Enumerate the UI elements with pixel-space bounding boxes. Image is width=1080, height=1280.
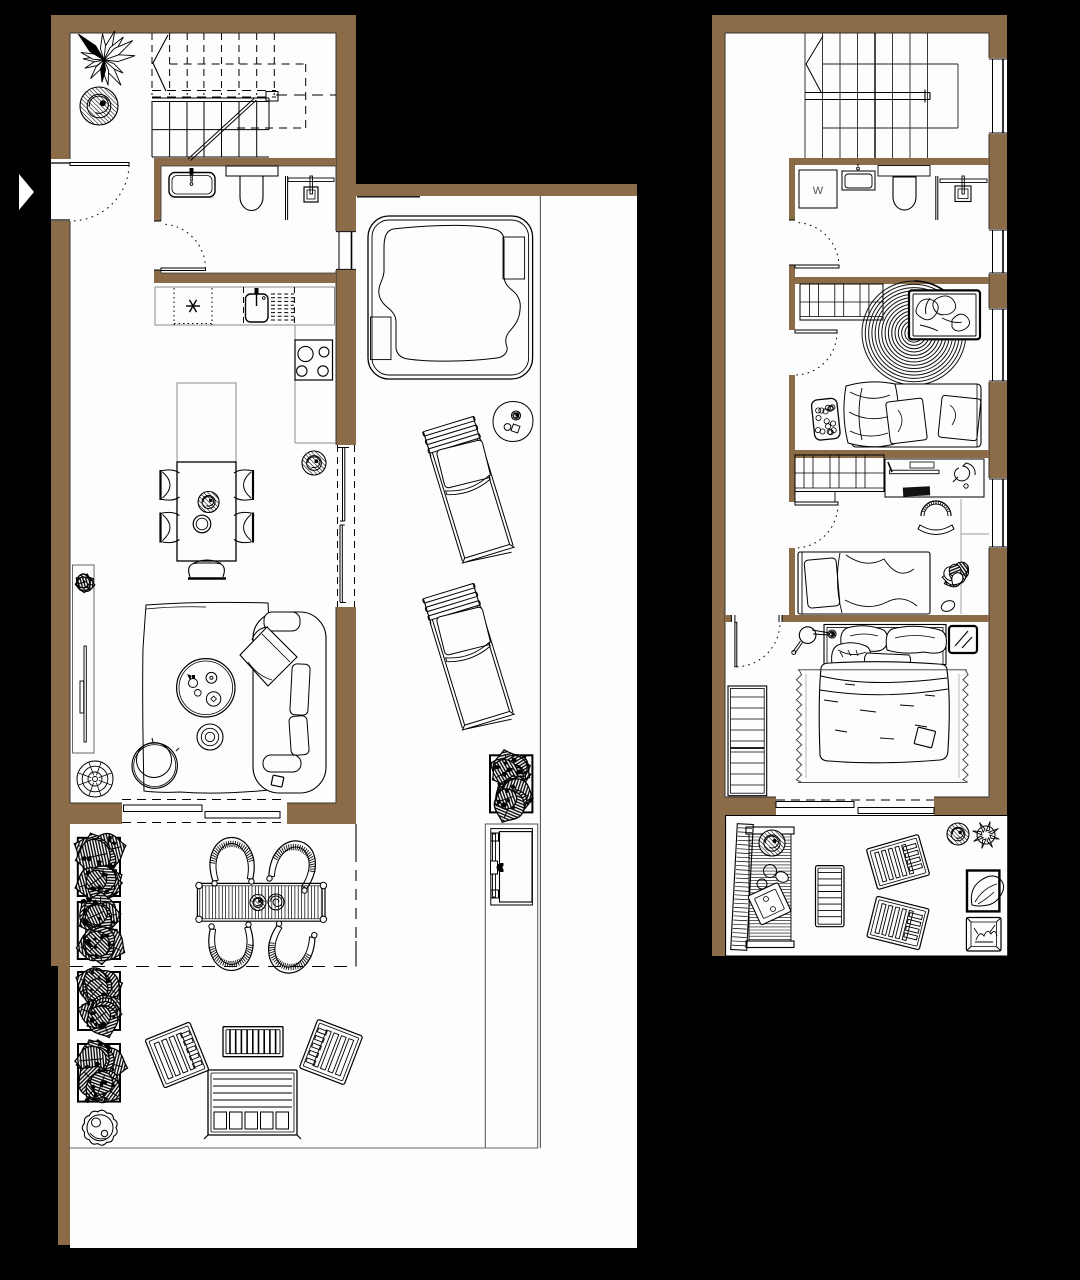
- svg-text:W: W: [813, 185, 824, 197]
